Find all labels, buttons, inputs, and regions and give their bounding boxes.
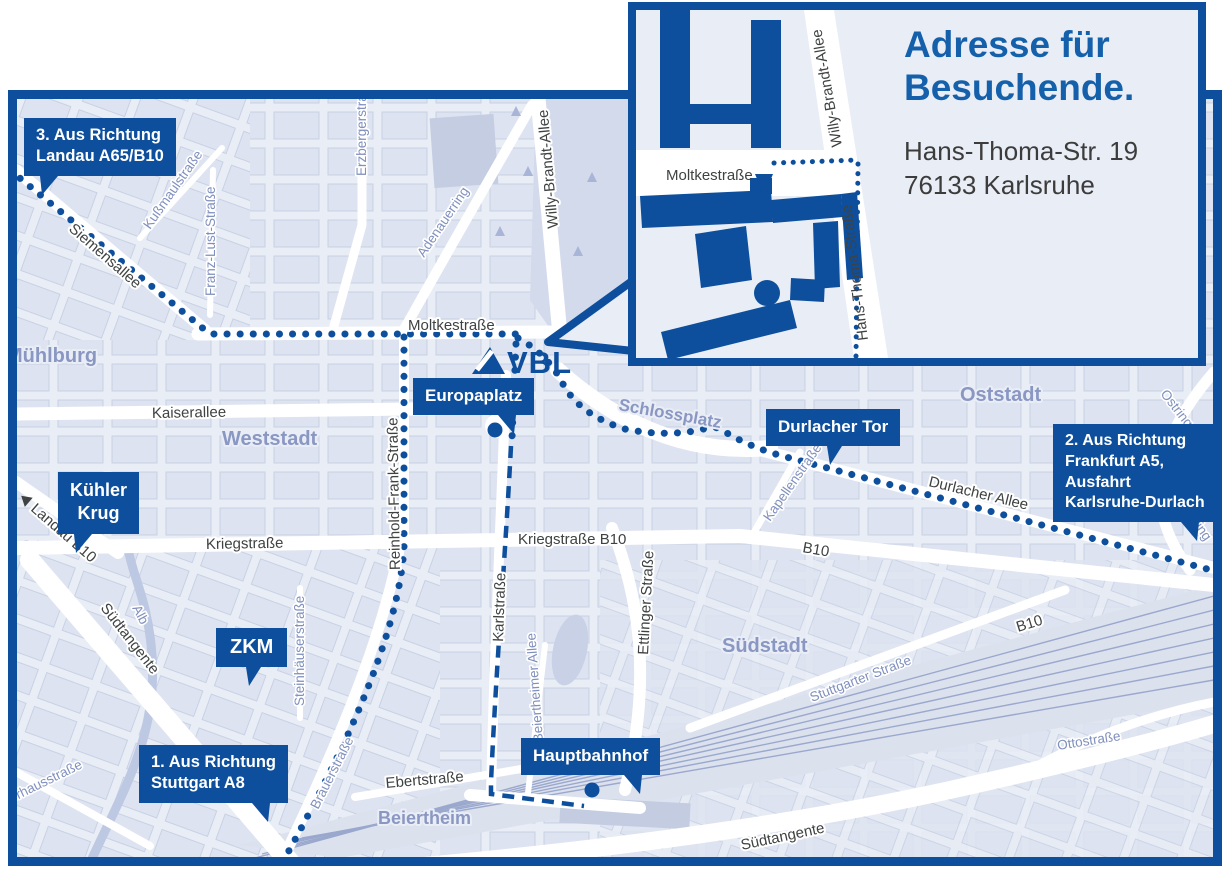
- inset-title-line1: Adresse für: [904, 24, 1134, 67]
- street-label-moltkestrasse: Moltkestraße: [408, 317, 495, 334]
- callout-zkm: ZKM: [216, 628, 287, 667]
- callout-europaplatz-label: Europaplatz: [425, 385, 522, 407]
- callout-kuehler-krug: Kühler Krug: [58, 472, 139, 534]
- inset-campus-buildings: [640, 178, 863, 358]
- callout-frankfurt-line2: Frankfurt A5,: [1065, 452, 1205, 473]
- vbl-directions-map: Kaiserallee Moltkestraße Kriegstraße Kri…: [0, 0, 1230, 874]
- callout-kuehler-krug-line2: Krug: [70, 502, 127, 525]
- street-label-kaiserallee: Kaiserallee: [152, 404, 227, 422]
- inset-detail-map: Moltkestraße Willy-Brandt-Allee Hans-Tho…: [628, 2, 1206, 366]
- callout-landau-line2: Landau A65/B10: [36, 146, 164, 167]
- area-label-beiertheim: Beiertheim: [378, 808, 471, 828]
- street-label-kriegstrasse-b10: Kriegstraße B10: [518, 531, 626, 548]
- street-label-karlstrasse: Karlstraße: [490, 572, 509, 642]
- callout-frankfurt: 2. Aus Richtung Frankfurt A5, Ausfahrt K…: [1053, 424, 1217, 522]
- area-label-oststadt: Oststadt: [960, 384, 1041, 406]
- inset-building-h: [660, 10, 781, 148]
- street-label-kriegstrasse: Kriegstraße: [206, 535, 284, 553]
- callout-zkm-label: ZKM: [230, 634, 273, 660]
- callout-frankfurt-line4: Karlsruhe-Durlach: [1065, 493, 1205, 514]
- callout-hauptbahnhof: Hauptbahnhof: [521, 738, 660, 775]
- inset-title-line2: Besuchende.: [904, 67, 1134, 110]
- inset-title: Adresse für Besuchende.: [904, 24, 1134, 110]
- street-label-reinhold-frank-strasse: Reinhold-Frank-Straße: [384, 417, 404, 570]
- callout-landau: 3. Aus Richtung Landau A65/B10: [24, 118, 176, 176]
- callout-frankfurt-line1: 2. Aus Richtung: [1065, 431, 1205, 452]
- area-label-weststadt: Weststadt: [222, 428, 318, 450]
- callout-durlacher-tor: Durlacher Tor: [766, 409, 900, 446]
- inset-address: Hans-Thoma-Str. 19 76133 Karlsruhe: [904, 134, 1138, 203]
- callout-landau-line1: 3. Aus Richtung: [36, 125, 164, 146]
- hauptbahnhof-marker-dot: [585, 783, 600, 798]
- street-label-franz-lust-strasse: Franz-Lust-Straße: [203, 186, 218, 296]
- callout-stuttgart-line2: Stuttgart A8: [151, 773, 276, 794]
- vbl-logo-text: VBL: [507, 345, 572, 380]
- callout-stuttgart: 1. Aus Richtung Stuttgart A8: [139, 745, 288, 803]
- area-label-muehlburg: Mühlburg: [6, 345, 97, 367]
- callout-stuttgart-line1: 1. Aus Richtung: [151, 752, 276, 773]
- inset-address-line2: 76133 Karlsruhe: [904, 168, 1138, 202]
- callout-europaplatz: Europaplatz: [413, 378, 534, 415]
- callout-hauptbahnhof-label: Hauptbahnhof: [533, 745, 648, 767]
- callout-kuehler-krug-line1: Kühler: [70, 479, 127, 502]
- callout-durlacher-tor-label: Durlacher Tor: [778, 416, 888, 438]
- street-label-steinhaeuserstrasse: Steinhäuserstraße: [292, 596, 307, 706]
- callout-frankfurt-line3: Ausfahrt: [1065, 473, 1205, 494]
- area-label-suedstadt: Südstadt: [722, 635, 808, 657]
- inset-street-label-moltkestrasse: Moltkestraße: [666, 167, 753, 184]
- inset-address-line1: Hans-Thoma-Str. 19: [904, 134, 1138, 168]
